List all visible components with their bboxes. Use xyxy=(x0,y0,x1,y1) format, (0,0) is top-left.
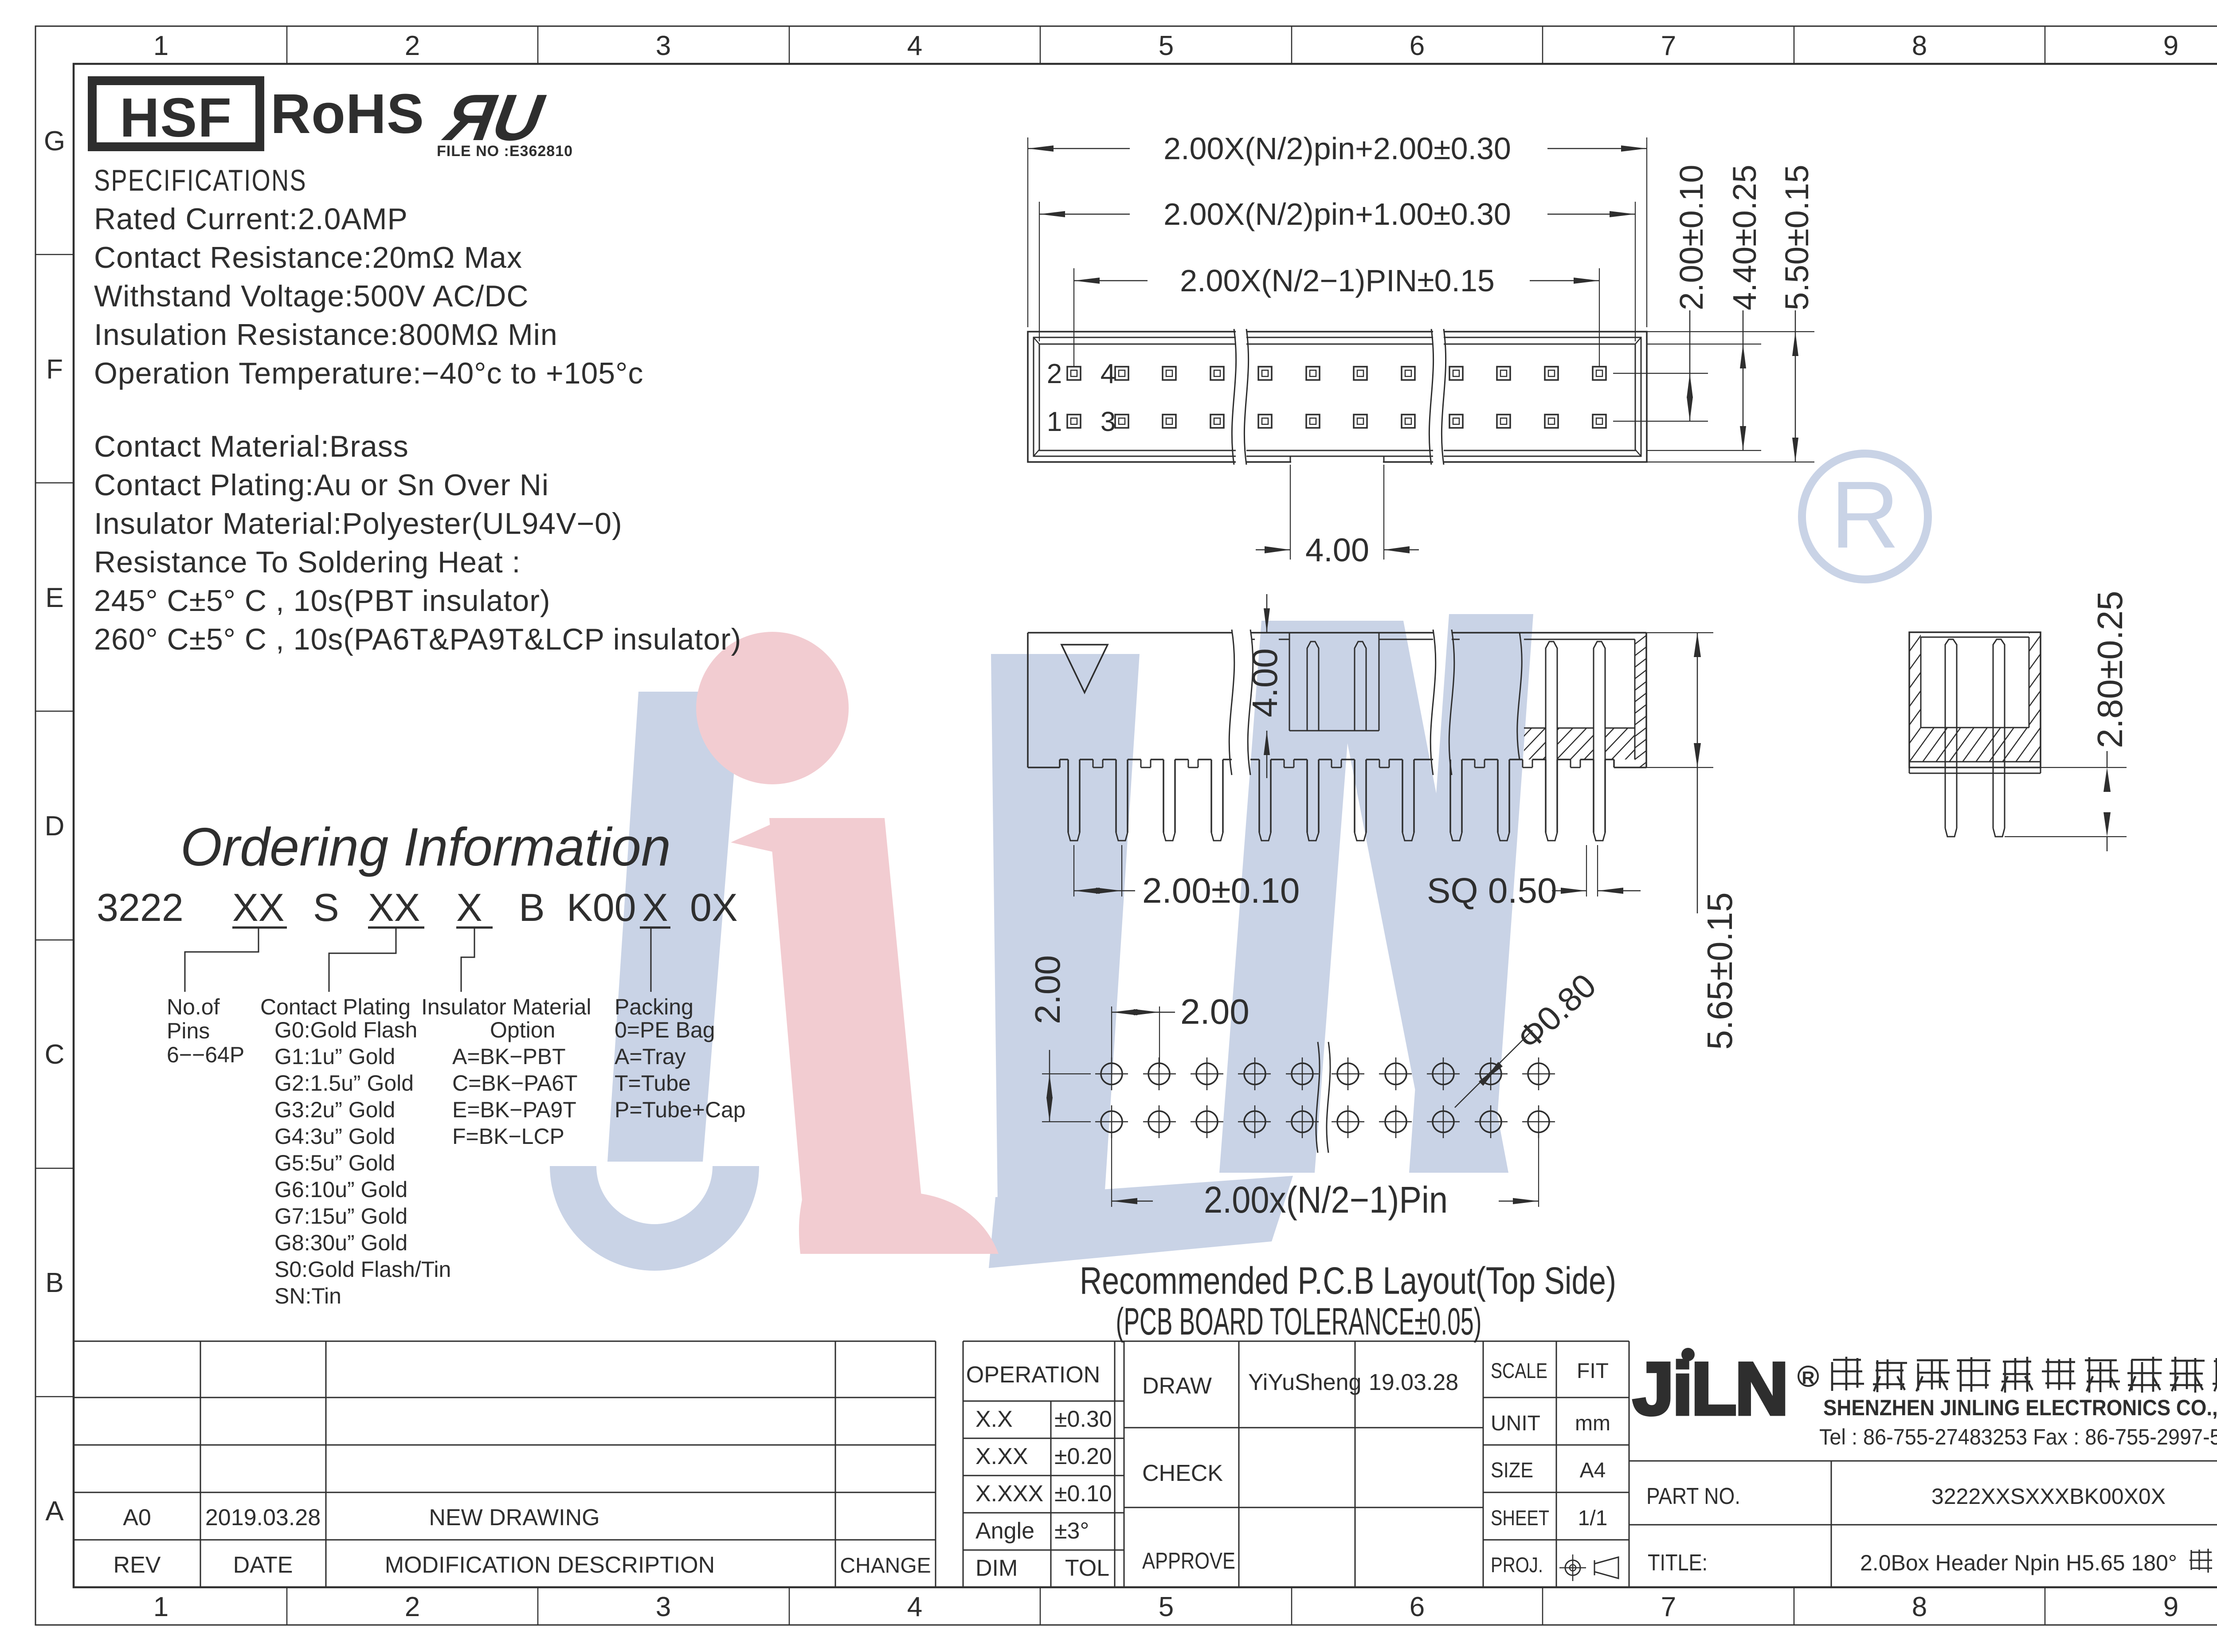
svg-text:Angle: Angle xyxy=(975,1518,1034,1544)
svg-text:9: 9 xyxy=(2163,31,2178,61)
svg-text:G8:30u” Gold: G8:30u” Gold xyxy=(274,1230,407,1255)
svg-text:D: D xyxy=(45,811,65,842)
svg-text:HSF: HSF xyxy=(120,87,232,149)
svg-text:0=PE Bag: 0=PE Bag xyxy=(615,1018,715,1042)
svg-text:6−−64P: 6−−64P xyxy=(167,1042,244,1067)
svg-text:2: 2 xyxy=(1047,359,1062,389)
svg-text:2.00X(N/2−1)PIN±0.15: 2.00X(N/2−1)PIN±0.15 xyxy=(1180,263,1495,298)
svg-text:8: 8 xyxy=(1912,1592,1927,1622)
svg-text:19.03.28: 19.03.28 xyxy=(1369,1370,1458,1395)
svg-text:DIM: DIM xyxy=(975,1555,1018,1581)
svg-text:F=BK−LCP: F=BK−LCP xyxy=(452,1124,564,1149)
svg-text:TITLE:: TITLE: xyxy=(1648,1550,1708,1576)
svg-text:G2:1.5u” Gold: G2:1.5u” Gold xyxy=(274,1071,414,1096)
svg-text:6: 6 xyxy=(1410,31,1425,61)
svg-text:Insulator Material:Polyester(: Insulator Material:Polyester(UL94V−0) xyxy=(94,507,623,540)
svg-text:5: 5 xyxy=(1159,31,1174,61)
svg-text:RoHS: RoHS xyxy=(270,82,424,145)
svg-text:±0.10: ±0.10 xyxy=(1054,1481,1112,1507)
svg-text:TOL: TOL xyxy=(1065,1555,1109,1581)
svg-text:G3:2u” Gold: G3:2u” Gold xyxy=(274,1097,395,1122)
svg-text:1: 1 xyxy=(153,1592,168,1622)
svg-text:SHENZHEN JINLING ELECTRONICS C: SHENZHEN JINLING ELECTRONICS CO.,LTD xyxy=(1823,1395,2217,1420)
svg-text:G5:5u” Gold: G5:5u” Gold xyxy=(274,1151,395,1175)
svg-text:OPERATION: OPERATION xyxy=(966,1362,1100,1388)
svg-text:±0.20: ±0.20 xyxy=(1054,1444,1112,1469)
svg-text:Rated Current:2.0AMP: Rated Current:2.0AMP xyxy=(94,202,408,236)
svg-text:UNIT: UNIT xyxy=(1491,1412,1540,1435)
svg-text:MODIFICATION DESCRIPTION: MODIFICATION DESCRIPTION xyxy=(385,1552,715,1578)
svg-text:Insulation Resistance:800MΩ M: Insulation Resistance:800MΩ Min xyxy=(94,318,558,352)
svg-text:±0.30: ±0.30 xyxy=(1054,1406,1112,1432)
svg-text:X.XXX: X.XXX xyxy=(975,1481,1043,1507)
svg-text:3222: 3222 xyxy=(97,885,184,929)
svg-text:Ordering Information: Ordering Information xyxy=(180,817,671,877)
svg-text:PROJ.: PROJ. xyxy=(1491,1554,1543,1577)
svg-text:DRAW: DRAW xyxy=(1142,1373,1212,1399)
svg-text:G: G xyxy=(44,126,65,157)
svg-text:R: R xyxy=(1830,461,1899,568)
svg-text:A4: A4 xyxy=(1580,1459,1606,1482)
svg-text:B: B xyxy=(45,1268,63,1298)
svg-text:2.0Box Header Npin H5.65 1: 2.0Box Header Npin H5.65 180° xyxy=(1860,1550,2177,1575)
svg-text:2.00X(N/2)pin+1.00±0.30: 2.00X(N/2)pin+1.00±0.30 xyxy=(1163,197,1511,231)
svg-text:5: 5 xyxy=(1159,1592,1174,1622)
svg-text:Pins: Pins xyxy=(167,1018,210,1043)
svg-text:2019.03.28: 2019.03.28 xyxy=(205,1505,321,1531)
svg-text:1: 1 xyxy=(153,31,168,61)
svg-text:3222XXSXXXBK00X0X: 3222XXSXXXBK00X0X xyxy=(1931,1484,2166,1509)
svg-text:XX: XX xyxy=(368,885,420,929)
svg-text:C=BK−PA6T: C=BK−PA6T xyxy=(452,1071,578,1096)
svg-text:Packing: Packing xyxy=(615,994,693,1019)
svg-text:G7:15u” Gold: G7:15u” Gold xyxy=(274,1204,407,1229)
svg-text:2.00±0.10: 2.00±0.10 xyxy=(1142,871,1300,910)
svg-text:4: 4 xyxy=(907,1592,922,1622)
svg-text:Withstand Voltage:500V AC/DC: Withstand Voltage:500V AC/DC xyxy=(94,279,529,313)
svg-text:Operation Temperature:−40°c: Operation Temperature:−40°c to +105°c xyxy=(94,356,643,390)
svg-text:APPROVE: APPROVE xyxy=(1142,1548,1235,1574)
svg-text:Tel : 86-755-27483253 Fax : 86: Tel : 86-755-27483253 Fax : 86-755-2997-… xyxy=(1819,1425,2217,1449)
svg-text:2: 2 xyxy=(405,1592,420,1622)
svg-text:REV: REV xyxy=(114,1552,161,1578)
svg-text:R: R xyxy=(1802,1368,1815,1388)
svg-text:A: A xyxy=(45,1496,64,1527)
svg-text:3: 3 xyxy=(656,31,671,61)
svg-text:No.of: No.of xyxy=(167,994,220,1019)
svg-text:PART NO.: PART NO. xyxy=(1646,1484,1740,1509)
svg-text:2.00±0.10: 2.00±0.10 xyxy=(1673,164,1710,310)
svg-text:C: C xyxy=(45,1039,65,1070)
svg-text:G1:1u” Gold: G1:1u” Gold xyxy=(274,1044,395,1069)
svg-text:SN:Tin: SN:Tin xyxy=(274,1284,341,1308)
svg-text:FILE NO :E362810: FILE NO :E362810 xyxy=(437,143,573,160)
svg-text:0X: 0X xyxy=(690,885,738,929)
svg-text:9: 9 xyxy=(2163,1592,2178,1622)
svg-text:S: S xyxy=(313,885,339,929)
svg-text:2.00: 2.00 xyxy=(1028,955,1067,1024)
svg-text:Contact Plating:Au or Sn O: Contact Plating:Au or Sn Over Ni xyxy=(94,468,549,502)
svg-text:E=BK−PA9T: E=BK−PA9T xyxy=(452,1097,576,1122)
svg-text:±3°: ±3° xyxy=(1054,1518,1089,1544)
svg-text:A=Tray: A=Tray xyxy=(615,1044,686,1069)
svg-text:P=Tube+Cap: P=Tube+Cap xyxy=(615,1097,746,1122)
svg-text:G0:Gold Flash: G0:Gold Flash xyxy=(274,1018,417,1042)
svg-text:G6:10u” Gold: G6:10u” Gold xyxy=(274,1177,407,1202)
svg-text:SQ 0.50: SQ 0.50 xyxy=(1427,871,1557,910)
svg-text:G4:3u” Gold: G4:3u” Gold xyxy=(274,1124,395,1149)
svg-text:YiYuSheng: YiYuSheng xyxy=(1248,1370,1361,1395)
svg-text:mm: mm xyxy=(1575,1412,1610,1435)
svg-text:SIZE: SIZE xyxy=(1491,1459,1533,1482)
svg-text:(PCB BOARD TOLERANCE±0.05): (PCB BOARD TOLERANCE±0.05) xyxy=(1116,1300,1482,1343)
svg-text:6: 6 xyxy=(1410,1592,1425,1622)
svg-text:4.40±0.25: 4.40±0.25 xyxy=(1726,164,1763,310)
svg-text:Contact Plating: Contact Plating xyxy=(260,994,411,1019)
svg-text:JiLN: JiLN xyxy=(1633,1347,1787,1430)
svg-text:2: 2 xyxy=(405,31,420,61)
svg-text:Recommended P.C.B Layout(Top: Recommended P.C.B Layout(Top Side) xyxy=(1080,1260,1616,1302)
svg-text:A=BK−PBT: A=BK−PBT xyxy=(452,1044,566,1069)
svg-text:2.00x(N/2−1)Pin: 2.00x(N/2−1)Pin xyxy=(1204,1179,1448,1221)
svg-text:B: B xyxy=(519,885,545,929)
svg-text:SHEET: SHEET xyxy=(1491,1507,1549,1530)
svg-text:DATE: DATE xyxy=(233,1552,293,1578)
svg-text:2.00X(N/2)pin+2.00±0.30: 2.00X(N/2)pin+2.00±0.30 xyxy=(1163,131,1511,166)
svg-text:4: 4 xyxy=(907,31,922,61)
svg-text:2.80±0.25: 2.80±0.25 xyxy=(2090,591,2130,748)
svg-text:3: 3 xyxy=(656,1592,671,1622)
svg-text:CHANGE: CHANGE xyxy=(840,1554,931,1578)
svg-text:3: 3 xyxy=(1101,407,1116,437)
svg-text:A0: A0 xyxy=(123,1505,151,1531)
svg-text:F: F xyxy=(46,354,63,385)
svg-text:K00: K00 xyxy=(567,885,636,929)
svg-text:5.65±0.15: 5.65±0.15 xyxy=(1700,892,1739,1049)
svg-text:7: 7 xyxy=(1661,31,1676,61)
svg-text:5.50±0.15: 5.50±0.15 xyxy=(1778,164,1815,310)
svg-text:Contact Material:Brass: Contact Material:Brass xyxy=(94,430,409,463)
svg-text:SCALE: SCALE xyxy=(1491,1359,1547,1383)
svg-text:Contact Resistance:20mΩ Max: Contact Resistance:20mΩ Max xyxy=(94,241,522,274)
svg-text:CHECK: CHECK xyxy=(1142,1460,1223,1486)
svg-text:X.X: X.X xyxy=(975,1406,1013,1432)
svg-text:FIT: FIT xyxy=(1577,1359,1609,1383)
svg-text:XX: XX xyxy=(232,885,284,929)
svg-text:8: 8 xyxy=(1912,31,1927,61)
svg-text:Option: Option xyxy=(490,1018,555,1042)
svg-text:T=Tube: T=Tube xyxy=(615,1071,691,1096)
svg-text:SPECIFICATIONS: SPECIFICATIONS xyxy=(94,164,307,197)
svg-text:4: 4 xyxy=(1101,359,1116,389)
svg-text:1: 1 xyxy=(1047,407,1062,437)
svg-text:S0:Gold Flash/Tin: S0:Gold Flash/Tin xyxy=(274,1257,451,1282)
svg-text:1/1: 1/1 xyxy=(1578,1507,1608,1530)
svg-text:X: X xyxy=(642,885,668,929)
svg-text:NEW DRAWING: NEW DRAWING xyxy=(429,1505,599,1531)
svg-text:2.00: 2.00 xyxy=(1180,992,1250,1031)
svg-text:7: 7 xyxy=(1661,1592,1676,1622)
svg-text:X.XX: X.XX xyxy=(975,1444,1028,1469)
svg-text:4.00: 4.00 xyxy=(1305,532,1369,568)
svg-text:X: X xyxy=(456,885,482,929)
svg-text:Resistance To Soldering Hea: Resistance To Soldering Heat : xyxy=(94,545,521,579)
svg-text:Insulator Material: Insulator Material xyxy=(421,994,591,1019)
svg-text:4.00: 4.00 xyxy=(1245,648,1285,717)
svg-text:E: E xyxy=(45,583,63,613)
svg-text:260° C±5° C , 10s(PA6T&PA9T&LC: 260° C±5° C , 10s(PA6T&PA9T&LCP insulato… xyxy=(94,622,741,656)
svg-text:245° C±5° C , 10s(PBT insulat: 245° C±5° C , 10s(PBT insulator) xyxy=(94,584,551,618)
